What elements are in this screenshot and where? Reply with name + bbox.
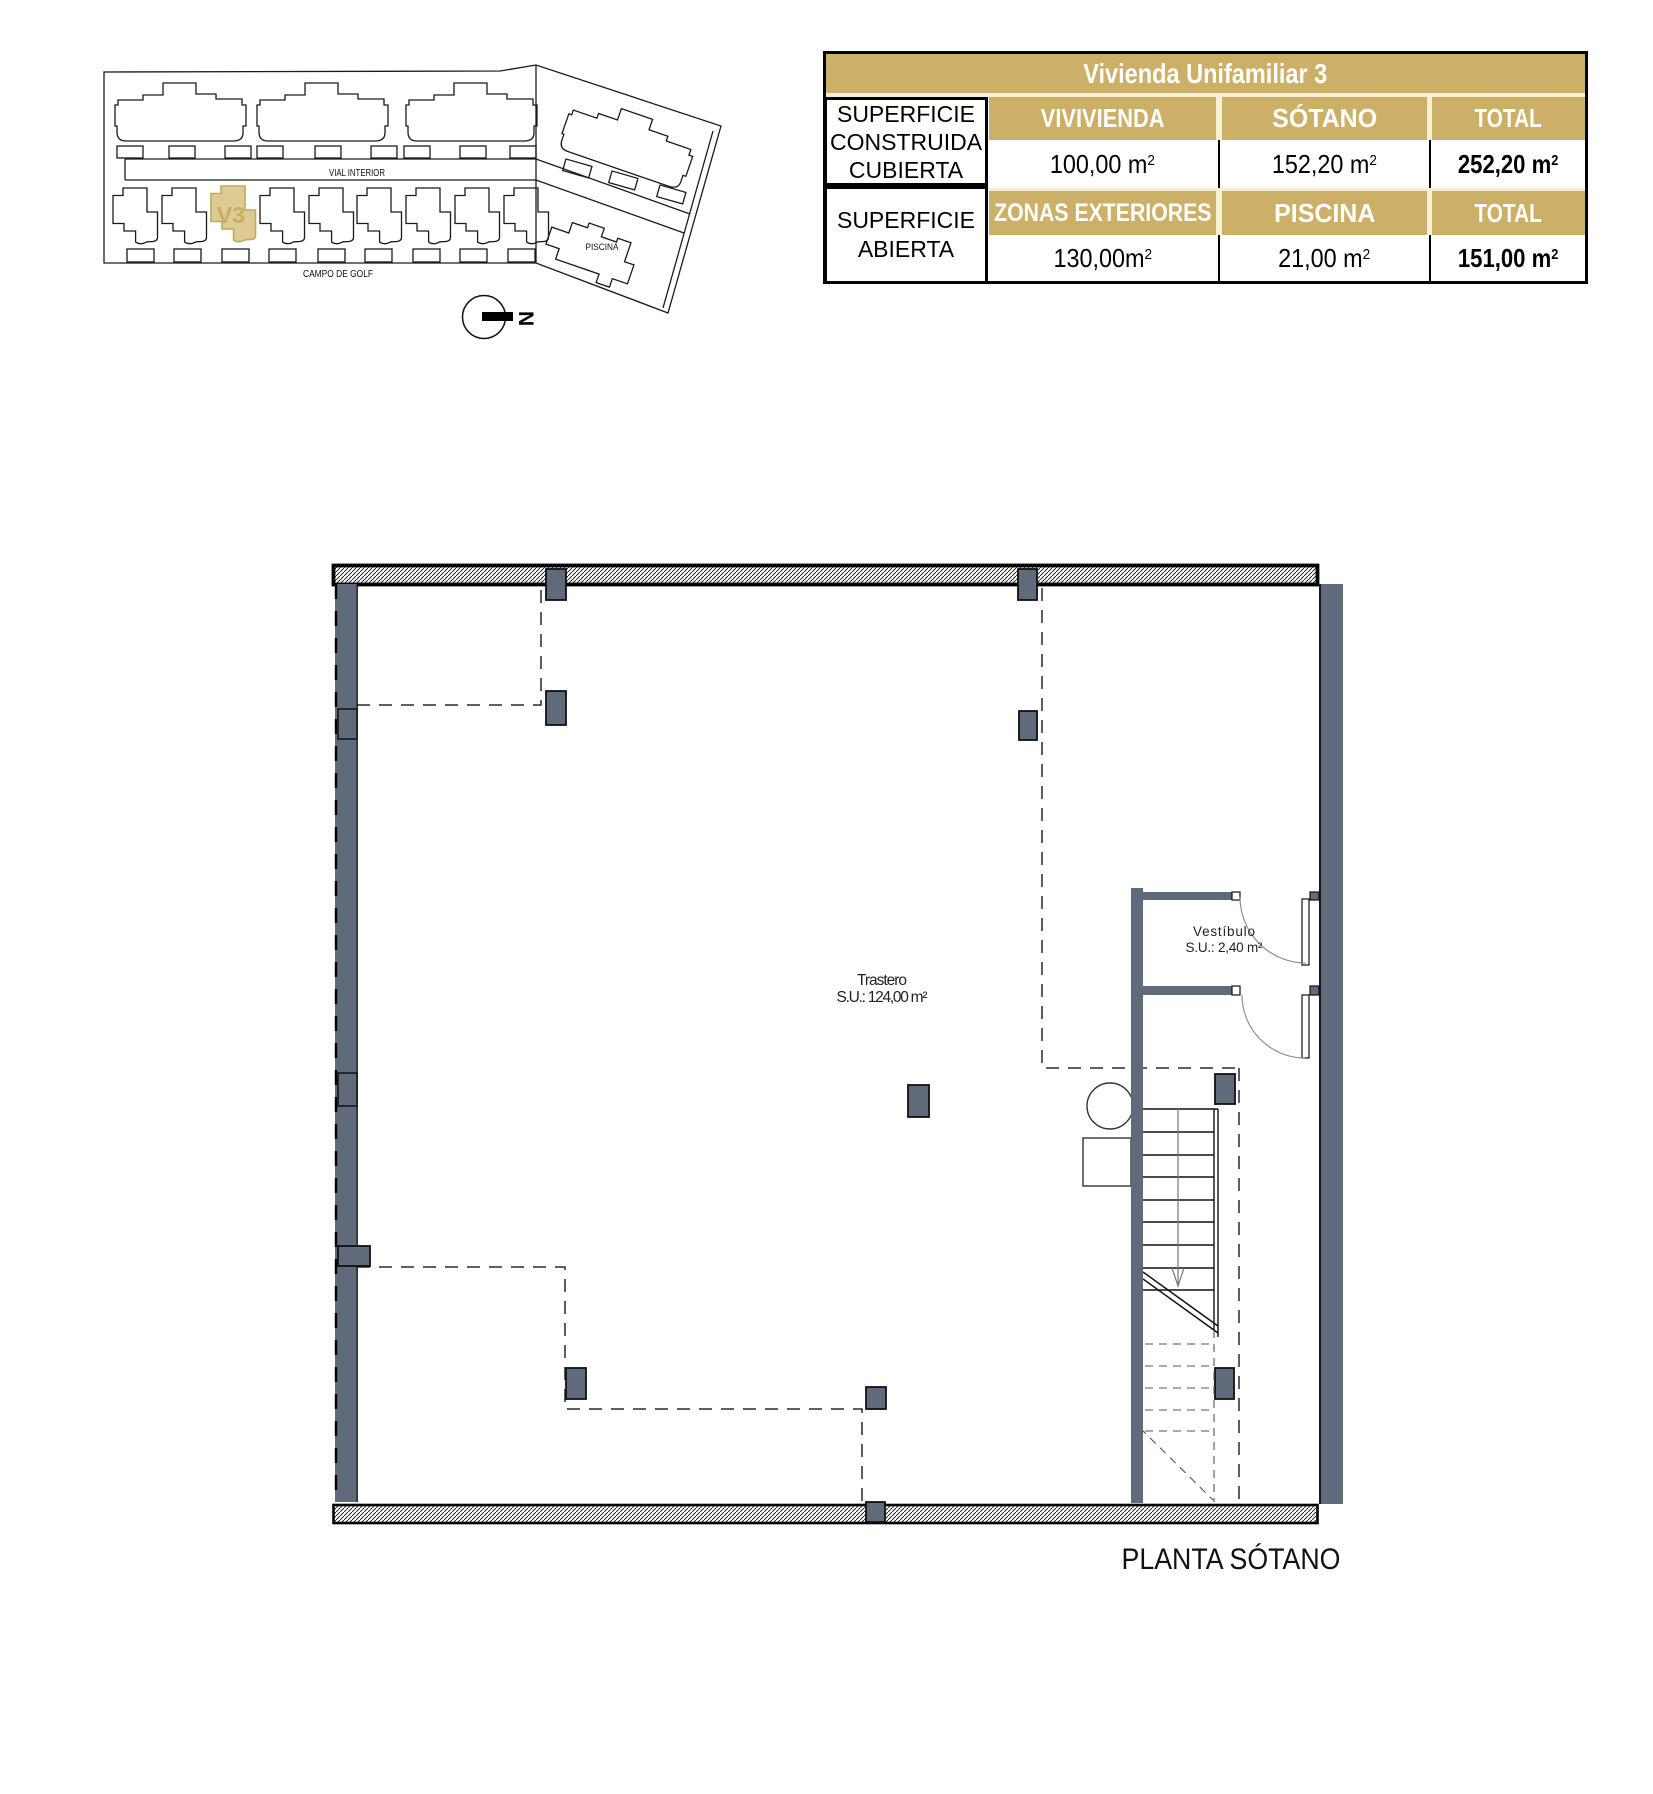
svg-text:S.U.: 124,00 m²: S.U.: 124,00 m² [837, 989, 928, 1006]
svg-text:PISCINA: PISCINA [586, 242, 619, 252]
svg-text:S.U.: 2,40 m²: S.U.: 2,40 m² [1186, 940, 1264, 955]
svg-text:N: N [514, 311, 537, 326]
svg-text:PLANTA SÓTANO: PLANTA SÓTANO [1122, 1543, 1341, 1576]
svg-text:V3: V3 [217, 202, 245, 228]
svg-text:CAMPO DE GOLF: CAMPO DE GOLF [303, 268, 373, 280]
svg-text:VIAL INTERIOR: VIAL INTERIOR [329, 168, 385, 179]
svg-text:Trastero: Trastero [857, 972, 907, 989]
svg-text:Vestíbulo: Vestíbulo [1193, 924, 1255, 939]
